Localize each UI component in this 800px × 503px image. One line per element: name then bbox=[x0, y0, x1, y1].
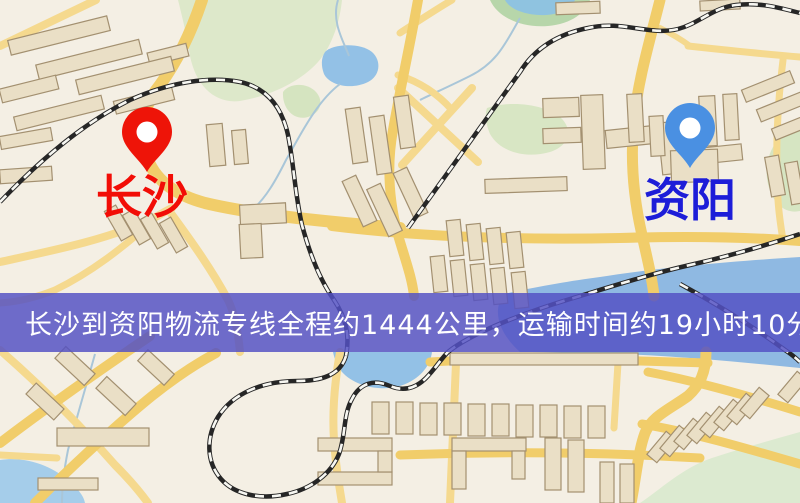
building bbox=[486, 227, 504, 264]
building bbox=[57, 428, 149, 446]
building bbox=[318, 472, 392, 485]
building bbox=[492, 404, 509, 436]
building bbox=[206, 123, 226, 166]
building bbox=[452, 438, 526, 451]
building bbox=[723, 94, 739, 141]
water-area bbox=[322, 45, 379, 86]
road-minor bbox=[0, 455, 57, 458]
building bbox=[444, 403, 461, 435]
building bbox=[564, 406, 581, 438]
building bbox=[506, 231, 524, 268]
building bbox=[452, 451, 466, 489]
building bbox=[318, 438, 392, 451]
building bbox=[378, 451, 392, 472]
building bbox=[540, 405, 557, 437]
building bbox=[581, 95, 606, 170]
building bbox=[232, 129, 249, 164]
building bbox=[450, 353, 638, 365]
destination-pin-icon-hole bbox=[680, 118, 701, 139]
map-canvas[interactable] bbox=[0, 0, 800, 503]
building bbox=[543, 97, 580, 117]
building bbox=[240, 203, 287, 225]
origin-pin-icon-hole bbox=[137, 122, 158, 143]
building bbox=[627, 94, 644, 143]
building bbox=[396, 402, 413, 434]
building bbox=[600, 462, 614, 503]
destination-label: 资阳 bbox=[644, 177, 736, 223]
building bbox=[446, 219, 464, 256]
building bbox=[420, 403, 437, 435]
road-minor bbox=[614, 363, 618, 428]
building bbox=[568, 440, 584, 492]
building bbox=[556, 1, 600, 15]
origin-label: 长沙 bbox=[96, 174, 188, 220]
building bbox=[485, 177, 567, 194]
building bbox=[372, 402, 389, 434]
building bbox=[588, 406, 605, 438]
map-view[interactable]: 长沙 资阳 长沙到资阳物流专线全程约1444公里，运输时间约19小时10分钟. bbox=[0, 0, 800, 503]
banner-text: 长沙到资阳物流专线全程约1444公里，运输时间约19小时10分钟. bbox=[25, 303, 800, 342]
building bbox=[430, 255, 448, 292]
building bbox=[466, 223, 484, 260]
building bbox=[545, 438, 561, 490]
building bbox=[649, 116, 665, 157]
building bbox=[516, 405, 533, 437]
building bbox=[38, 478, 98, 490]
building bbox=[239, 223, 263, 258]
building bbox=[512, 451, 525, 479]
info-banner: 长沙到资阳物流专线全程约1444公里，运输时间约19小时10分钟. bbox=[0, 293, 800, 352]
building bbox=[468, 404, 485, 436]
building bbox=[450, 259, 468, 296]
building bbox=[543, 127, 582, 143]
building bbox=[620, 464, 634, 503]
